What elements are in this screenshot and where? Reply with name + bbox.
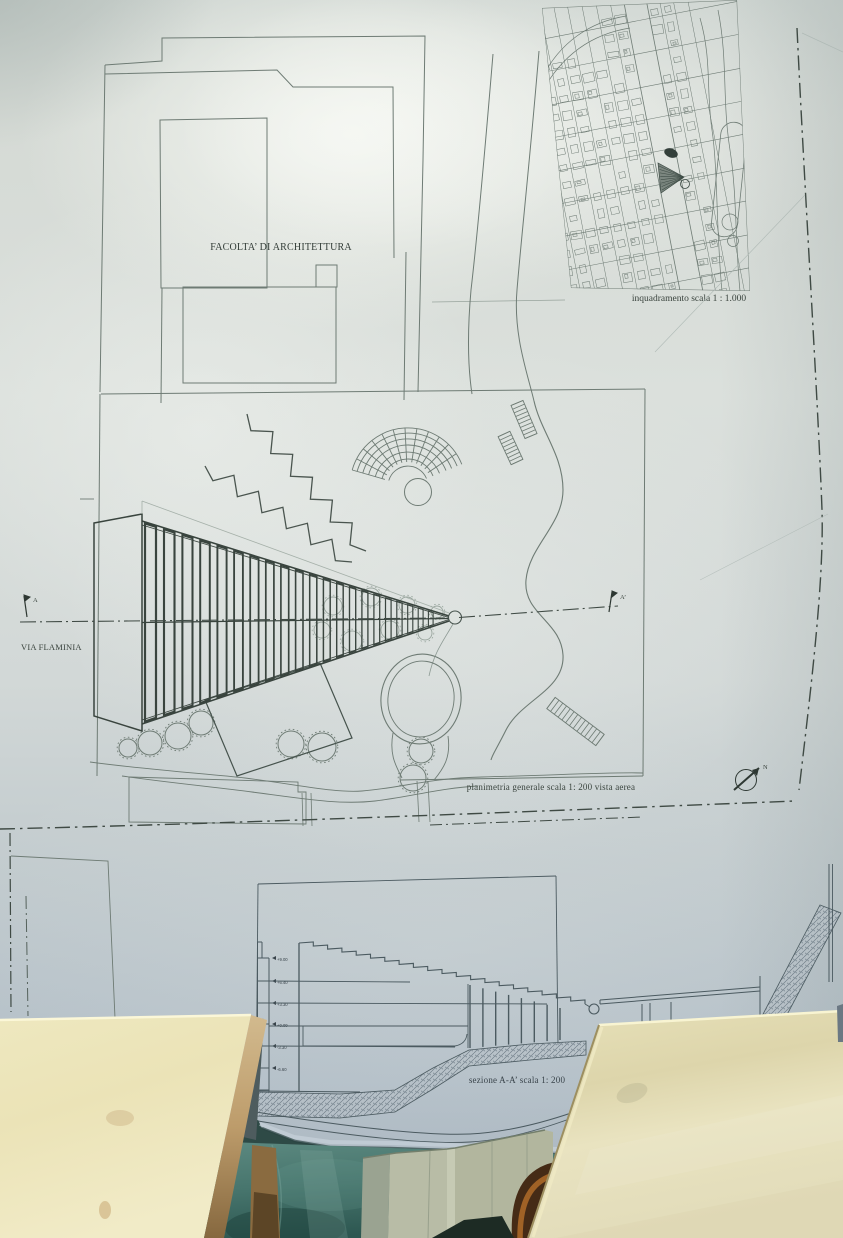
svg-text:-6.60: -6.60: [277, 1067, 287, 1072]
svg-text:A’: A’: [620, 594, 626, 601]
svg-text:sezione A-A’ scala 1: 200: sezione A-A’ scala 1: 200: [469, 1075, 566, 1085]
svg-text:inquadramento scala 1 : 1.000: inquadramento scala 1 : 1.000: [632, 294, 746, 304]
svg-text:FACOLTA’ DI ARCHITETTURA: FACOLTA’ DI ARCHITETTURA: [210, 242, 352, 253]
svg-text:VIA FLAMINIA: VIA FLAMINIA: [21, 642, 82, 652]
svg-text:+0.00: +0.00: [277, 1023, 288, 1028]
svg-text:A: A: [33, 597, 38, 604]
svg-text:planimetria generale scala 1:: planimetria generale scala 1: 200 vista …: [467, 782, 635, 792]
svg-text:N: N: [763, 764, 768, 771]
svg-text:+9.00: +9.00: [277, 957, 288, 962]
